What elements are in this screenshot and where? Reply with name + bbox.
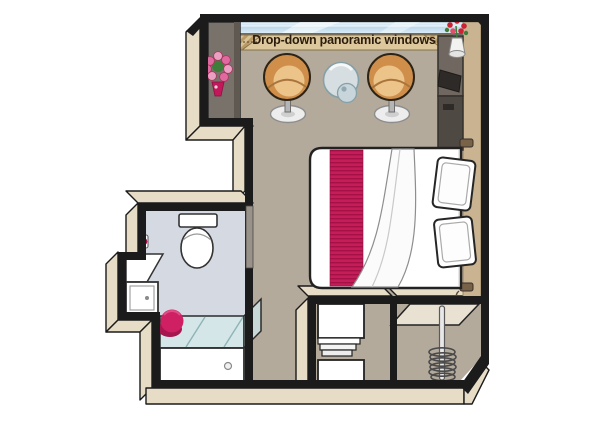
floor-plan: Drop-down panoramic windows: [0, 0, 600, 422]
tub-chair-left: [264, 54, 310, 123]
hanger-rod: [440, 306, 445, 380]
floor-plan-drawing: [0, 0, 600, 422]
bathroom-door: [246, 206, 253, 268]
bed-runner: [330, 150, 363, 286]
pillow-top: [432, 157, 476, 211]
double-bed: [310, 148, 476, 288]
window-label: Drop-down panoramic windows: [232, 32, 456, 48]
tub-chair-right: [368, 54, 414, 123]
pillow-bottom: [434, 216, 477, 268]
closet-shelves: [318, 304, 364, 382]
vanity-cabinet: [126, 254, 163, 314]
